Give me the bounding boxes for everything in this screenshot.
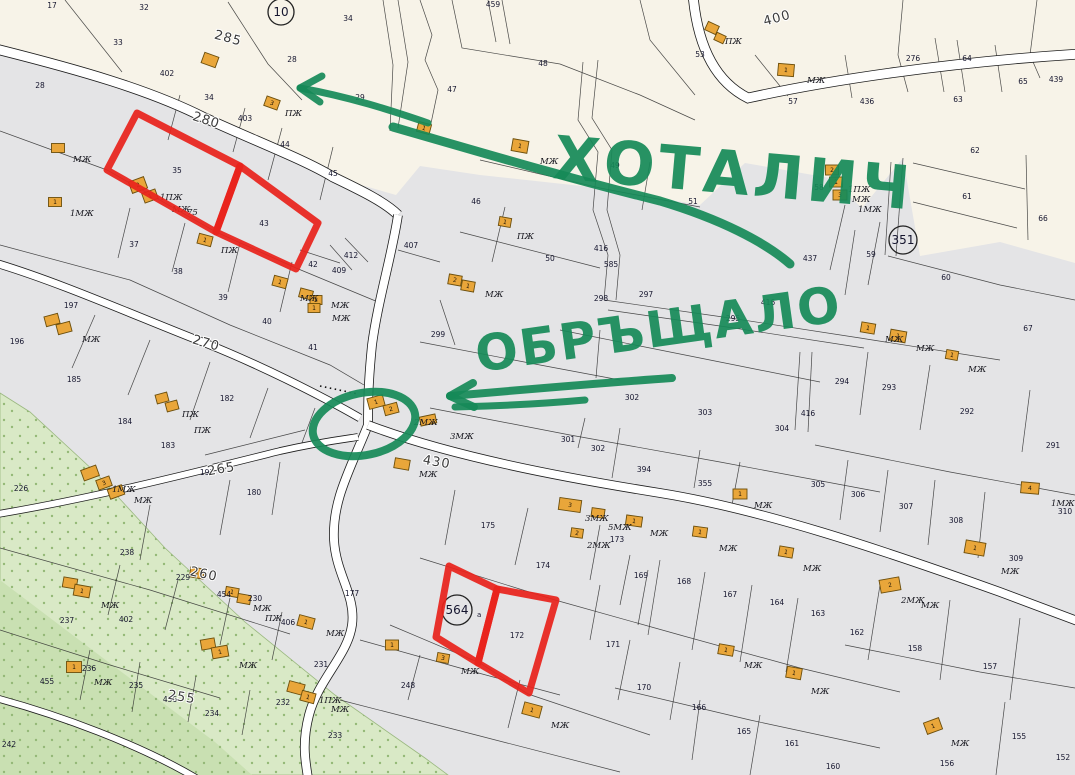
parcel-number: 156 xyxy=(940,759,955,768)
building-type-label: МЖ xyxy=(920,601,940,611)
parcel-number: 161 xyxy=(785,739,800,748)
parcel-number: 236 xyxy=(82,664,97,673)
parcel-number: 412 xyxy=(344,251,359,260)
parcel-number: 45 xyxy=(328,169,338,178)
building: 2 xyxy=(570,528,583,539)
building-number: 4 xyxy=(1028,485,1033,492)
parcel-number: 35 xyxy=(172,166,182,175)
building-number: 1 xyxy=(738,491,742,498)
building: 1 xyxy=(778,546,794,558)
parcel-number: 293 xyxy=(882,383,897,392)
parcel-number: 46 xyxy=(471,197,481,206)
building-type-label: МЖ xyxy=(299,294,319,304)
building-type-label: ПЖ xyxy=(724,37,742,47)
parcel-number: 183 xyxy=(161,441,176,450)
parcel-number: 43 xyxy=(259,219,269,228)
building-type-label: ПЖ xyxy=(220,246,238,256)
parcel-number: 65 xyxy=(1018,77,1028,86)
parcel-number: 294 xyxy=(835,377,850,386)
parcel-number: 235 xyxy=(129,681,144,690)
parcel-number: 303 xyxy=(698,408,713,417)
parcel-number: 175 xyxy=(481,521,496,530)
building: 1 xyxy=(49,198,62,207)
building-number: 1 xyxy=(390,642,394,649)
parcel-number: 155 xyxy=(1012,732,1027,741)
parcel-number: 157 xyxy=(983,662,998,671)
parcel-number: 28 xyxy=(35,81,45,90)
building: 1 xyxy=(945,350,958,361)
building-type-label: МЖ xyxy=(81,335,101,345)
parcel-number: 355 xyxy=(698,479,713,488)
parcel-number: 298 xyxy=(594,294,609,303)
parcel-number: 53 xyxy=(695,50,705,59)
parcel-number: 459 xyxy=(486,0,501,9)
building-number: 1 xyxy=(784,67,789,74)
parcel-number: 306 xyxy=(851,490,866,499)
building: 1 xyxy=(778,63,795,76)
building: 1 xyxy=(860,322,876,334)
parcel-number: 158 xyxy=(908,644,923,653)
parcel-number: 66 xyxy=(1038,214,1048,223)
parcel-number: 44 xyxy=(280,140,290,149)
building: 1 xyxy=(67,662,82,673)
building-type-label: МЖ xyxy=(238,661,258,671)
building: 1 xyxy=(786,666,803,679)
building: 1 xyxy=(733,489,747,499)
building-type-label: 1МЖ xyxy=(112,485,136,495)
parcel-number: 437 xyxy=(803,254,818,263)
building-type-label: ПЖ xyxy=(516,232,534,242)
parcel-number: 394 xyxy=(637,465,652,474)
parcel-number: 307 xyxy=(899,502,914,511)
parcel-number: 232 xyxy=(276,698,291,707)
cadastral-map: 3111213121112112131231121111411211111311… xyxy=(0,0,1075,775)
building-type-label: МЖ xyxy=(718,544,738,554)
parcel-number: 416 xyxy=(594,244,609,253)
parcel-number: 455 xyxy=(40,677,55,686)
parcel-number: 163 xyxy=(811,609,826,618)
parcel-number: 177 xyxy=(345,589,360,598)
parcel-number: 436 xyxy=(860,97,875,106)
building-type-label: МЖ xyxy=(950,739,970,749)
parcel-number: 168 xyxy=(677,577,692,586)
building-type-label: ПЖ xyxy=(264,614,282,624)
parcel-number: 40 xyxy=(262,317,272,326)
building-type-label: МЖ xyxy=(330,301,350,311)
building-type-label: МЖ xyxy=(72,155,92,165)
building-type-label: МЖ xyxy=(806,76,826,86)
parcel-number: 42 xyxy=(308,260,318,269)
parcel-number: 585 xyxy=(604,260,619,269)
svg-text:10: 10 xyxy=(273,5,288,19)
building-type-label: МЖ xyxy=(915,344,935,354)
building-type-label: 1МЖ xyxy=(70,209,94,219)
parcel-number: 152 xyxy=(1056,753,1071,762)
parcel-number: 407 xyxy=(404,241,419,250)
building: 1 xyxy=(386,640,399,650)
parcel-number: 197 xyxy=(64,301,79,310)
parcel-number: 402 xyxy=(160,69,175,78)
building-number: 1 xyxy=(312,305,316,312)
building-type-label: МЖ xyxy=(884,335,904,345)
parcel-number: 402 xyxy=(119,615,134,624)
building-type-label: МЖ xyxy=(133,496,153,506)
parcel-number: 59 xyxy=(866,250,876,259)
parcel-number: 48 xyxy=(538,59,548,68)
parcel-number: 406 xyxy=(281,618,296,627)
building: 1 xyxy=(308,304,320,313)
building-type-label: МЖ xyxy=(418,470,438,480)
parcel-number: 309 xyxy=(1009,554,1024,563)
building: 1 xyxy=(692,526,707,538)
building-type-label: 2МЖ xyxy=(586,541,611,551)
parcel-number: 62 xyxy=(970,146,980,155)
building-type-label: 5МЖ xyxy=(608,523,632,533)
building: 1 xyxy=(461,280,476,292)
parcel-number: 37 xyxy=(129,240,139,249)
parcel-number: 173 xyxy=(610,535,625,544)
parcel-number: 57 xyxy=(788,97,798,106)
parcel-number: 167 xyxy=(723,590,738,599)
parcel-number: 242 xyxy=(2,740,17,749)
building: 1 xyxy=(498,217,511,228)
building-type-label: МЖ xyxy=(753,501,773,511)
building-type-label: 1МЖ xyxy=(1051,499,1075,509)
building-type-label: МЖ xyxy=(810,687,830,697)
parcel-number: 17 xyxy=(47,1,57,10)
building xyxy=(394,458,411,470)
parcel-number: 308 xyxy=(949,516,964,525)
parcel-number: 165 xyxy=(737,727,752,736)
building-type-label: МЖ xyxy=(743,661,763,671)
building: 1 xyxy=(511,139,529,154)
svg-text:564: 564 xyxy=(446,603,469,617)
parcel-number: 409 xyxy=(332,266,347,275)
parcel-number: 180 xyxy=(247,488,262,497)
parcel-number: 38 xyxy=(173,267,183,276)
parcel-number: 41 xyxy=(308,343,318,352)
parcel-number: 234 xyxy=(205,709,220,718)
parcel-number: 170 xyxy=(637,683,652,692)
building: 3 xyxy=(558,498,581,513)
building-type-label: МЖ xyxy=(550,721,570,731)
svg-text:351: 351 xyxy=(892,233,915,247)
building-type-label: 3МЖ xyxy=(450,432,474,442)
parcel-number: 299 xyxy=(431,330,446,339)
parcel-number: 304 xyxy=(775,424,790,433)
parcel-number: 233 xyxy=(328,731,343,740)
building-type-label: МЖ xyxy=(649,529,669,539)
parcel-number: 63 xyxy=(953,95,963,104)
parcel-number: 32 xyxy=(139,3,149,12)
parcel-number: 305 xyxy=(811,480,826,489)
parcel-number: 302 xyxy=(591,444,606,453)
building-type-label: МЖ xyxy=(1000,567,1020,577)
building-number: 1 xyxy=(53,199,57,206)
building: 1 xyxy=(964,540,986,556)
building-type-label: МЖ xyxy=(325,629,345,639)
parcel-number: 160 xyxy=(826,762,841,771)
parcel-number: 302 xyxy=(625,393,640,402)
parcel-number: 47 xyxy=(447,85,457,94)
parcel-number: 238 xyxy=(120,548,135,557)
parcel-number: 67 xyxy=(1023,324,1033,333)
parcel-number: 231 xyxy=(314,660,329,669)
building-type-label: МЖ xyxy=(331,314,351,324)
parcel-number: 33 xyxy=(113,38,123,47)
parcel-number: 172 xyxy=(510,631,525,640)
parcel-number: 185 xyxy=(67,375,82,384)
parcel-number: 403 xyxy=(238,114,253,123)
parcel-number: 50 xyxy=(545,254,555,263)
building-type-label: МЖ xyxy=(252,604,272,614)
building-number: 1 xyxy=(72,664,76,671)
parcel-number: 164 xyxy=(770,598,785,607)
building: 4 xyxy=(1021,482,1040,495)
building-type-label: МЖ xyxy=(100,601,120,611)
parcel-number: 196 xyxy=(10,337,25,346)
parcel-number: 301 xyxy=(561,435,576,444)
building-type-label: МЖ xyxy=(484,290,504,300)
parcel-number: 292 xyxy=(960,407,975,416)
parcel-number: 230 xyxy=(248,594,263,603)
parcel-number: 61 xyxy=(962,192,972,201)
parcel-number: 237 xyxy=(60,616,75,625)
parcel-number: 64 xyxy=(962,54,972,63)
building: 1 xyxy=(73,584,91,598)
building-type-label: МЖ xyxy=(93,678,113,688)
building-type-label: ПЖ xyxy=(284,109,302,119)
parcel-number: 171 xyxy=(606,640,621,649)
parcel-number: 297 xyxy=(639,290,654,299)
building: 2 xyxy=(879,577,901,593)
building-type-label: МЖ xyxy=(967,365,987,375)
building: 2 xyxy=(448,274,463,286)
building-type-label: 3МЖ xyxy=(585,514,609,524)
cadastral-map-viewer: 3111213121112112131231121111411211111311… xyxy=(0,0,1075,775)
parcel-number: 60 xyxy=(941,273,951,282)
parcel-number: 169 xyxy=(634,571,649,580)
building xyxy=(52,144,65,153)
building: 1 xyxy=(211,645,229,659)
building-type-label: МЖ xyxy=(460,667,480,677)
parcel-number: 416 xyxy=(801,409,816,418)
parcel-number: 182 xyxy=(220,394,235,403)
parcel-number: 276 xyxy=(906,54,921,63)
building-type-label: ПЖ xyxy=(181,410,199,420)
parcel-number: 174 xyxy=(536,561,551,570)
parcel-number: 248 xyxy=(401,681,416,690)
circled-number-suffix: а xyxy=(477,611,481,619)
parcel-number: 34 xyxy=(343,14,353,23)
parcel-number: 454 xyxy=(217,590,232,599)
building-type-label: МЖ xyxy=(330,705,350,715)
parcel-number: 166 xyxy=(692,703,707,712)
parcel-number: 162 xyxy=(850,628,865,637)
parcel-number: 439 xyxy=(1049,75,1064,84)
building: 3 xyxy=(436,653,449,664)
parcel-number: 184 xyxy=(118,417,133,426)
parcel-number: 226 xyxy=(14,484,29,493)
building: 1 xyxy=(718,644,735,656)
parcel-number: 39 xyxy=(218,293,228,302)
building-type-label: МЖ xyxy=(802,564,822,574)
parcel-number: 34 xyxy=(204,93,214,102)
building-type-label: ПЖ xyxy=(193,426,211,436)
parcel-number: 291 xyxy=(1046,441,1061,450)
parcel-number: 28 xyxy=(287,55,297,64)
